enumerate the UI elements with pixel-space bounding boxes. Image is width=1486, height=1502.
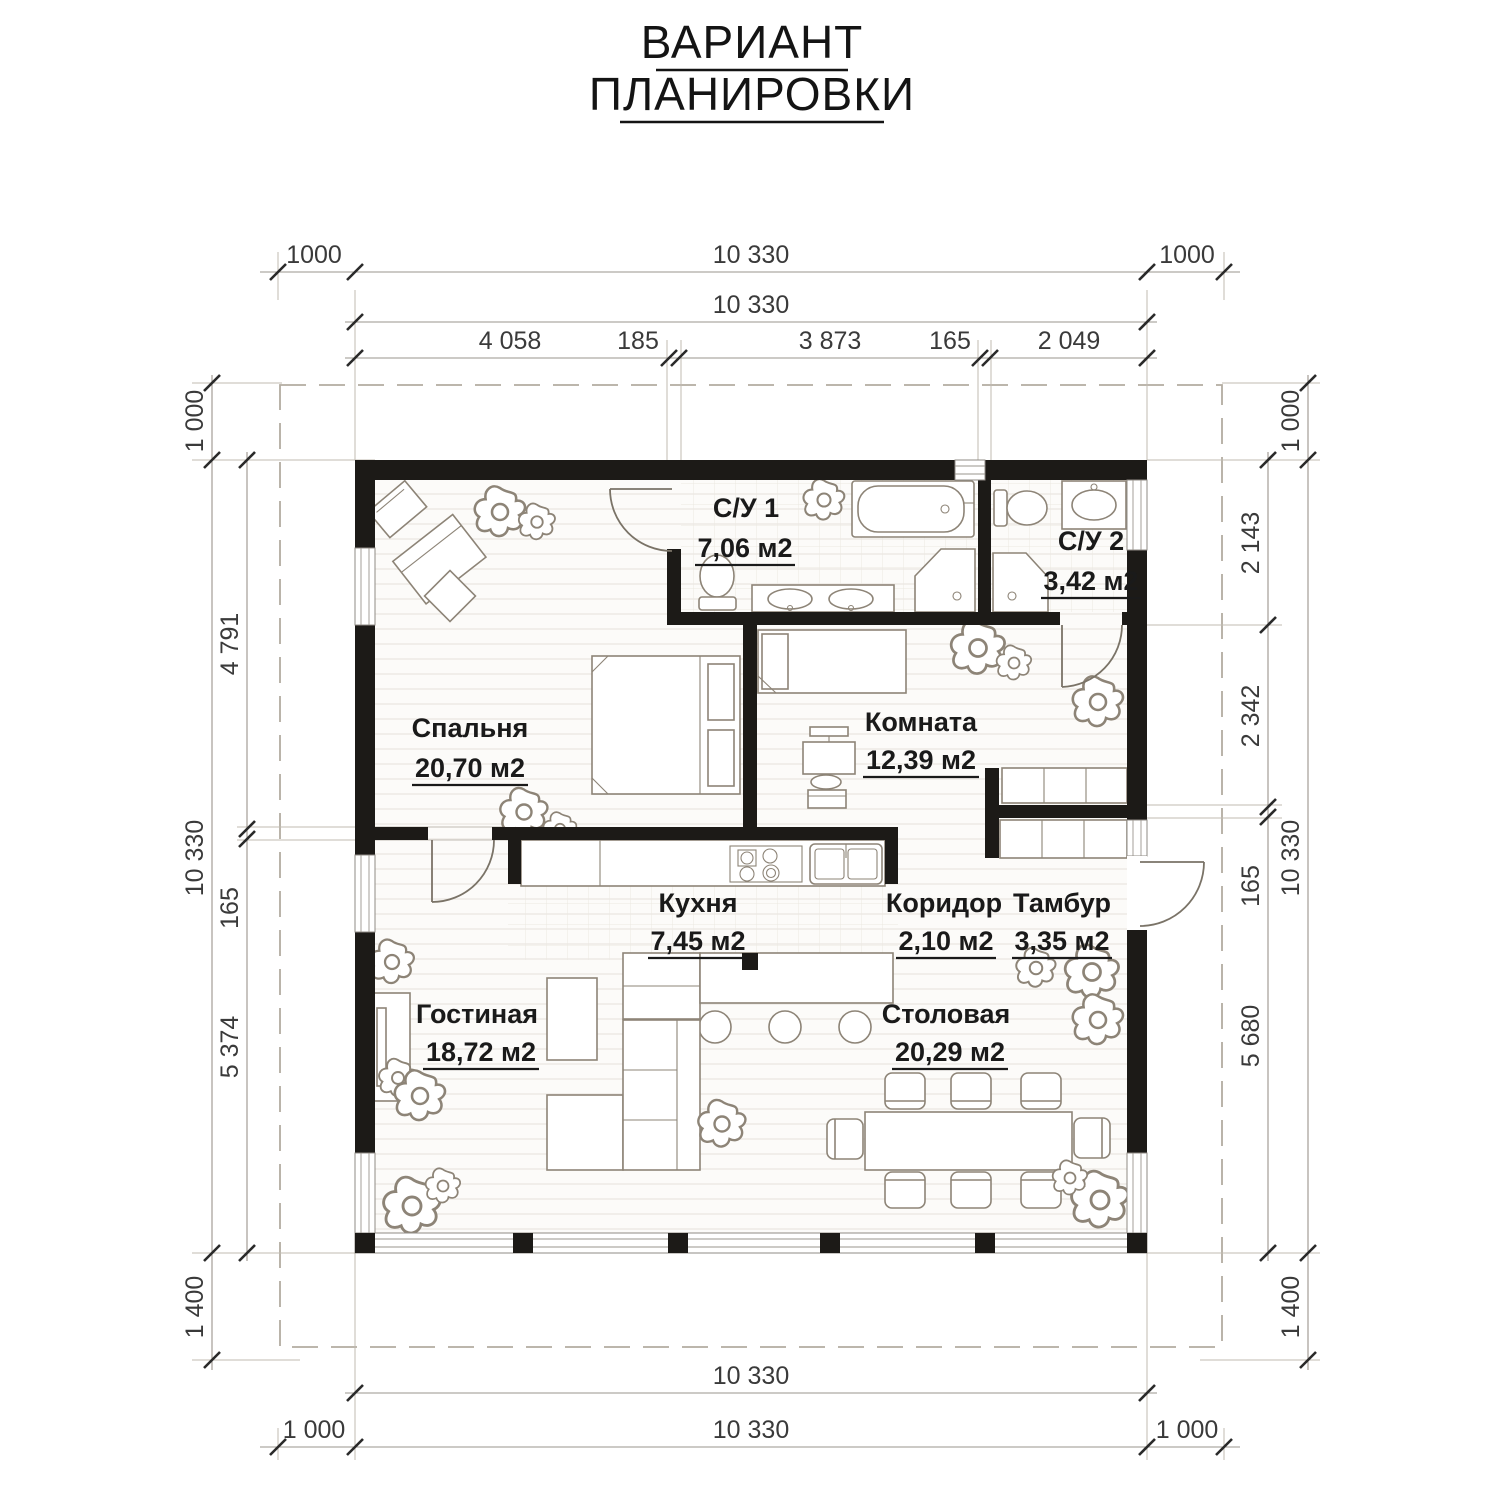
closet-vestibule [1000,820,1127,858]
dim-offset-left: 1 000 [283,1416,346,1444]
dim-offset-bottom: 1 400 [1277,1276,1305,1339]
room-name: Гостиная [416,999,538,1029]
dim-segment: 165 [929,327,971,355]
bed-single [758,630,906,693]
room-area: 20,29 м2 [895,1037,1005,1067]
dim-offset-top: 1 000 [181,390,209,453]
room-name: С/У 1 [713,493,779,523]
dim-segment: 4 791 [216,613,244,676]
dimension-left: 1 000 10 330 1 400 4 791 165 5 374 [181,375,255,1370]
room-name: Тамбур [1013,888,1111,918]
dim-offset-right: 1 000 [1156,1416,1219,1444]
dim-segment: 165 [1237,865,1265,907]
room-area: 7,06 м2 [697,533,792,563]
bar-stool [699,1011,731,1043]
window-living-left-low [355,1153,375,1233]
dimension-top: 1000 10 330 1000 10 330 4 058 185 3 873 … [260,241,1240,366]
dim-segment: 2 143 [1237,512,1265,575]
dining-chair [951,1172,991,1208]
floor-plan-svg: ВАРИАНТ ПЛАНИРОВКИ [0,0,1486,1502]
room-area: 18,72 м2 [426,1037,536,1067]
dining-chair [1074,1118,1110,1158]
dim-segment: 5 680 [1237,1005,1265,1068]
dining-chair [1021,1073,1061,1109]
window-bedroom-left [355,548,375,625]
double-sink-counter [752,585,894,612]
dining-chair [827,1119,863,1159]
room-area: 3,35 м2 [1014,926,1109,956]
dimension-right: 2 143 2 342 165 5 680 1 000 10 330 1 400 [1237,375,1316,1370]
window-top [955,460,985,480]
room-name: Коридор [886,888,1002,918]
dim-total: 10 330 [713,291,789,319]
dim-overall: 10 330 [713,1416,789,1444]
kitchen-sink-icon [810,844,882,884]
dimension-bottom: 10 330 1 000 10 330 1 000 [260,1362,1240,1455]
dim-segment: 4 058 [479,327,542,355]
bar-stool [769,1011,801,1043]
entrance-door [1127,856,1204,930]
dim-segment: 2 342 [1237,685,1265,748]
window-dining-right [1127,1153,1147,1233]
window-bath2-right [1127,480,1147,550]
room-name: Столовая [882,999,1011,1029]
dim-segment: 2 049 [1038,327,1101,355]
kitchen-counter [521,840,885,886]
dim-segment: 185 [617,327,659,355]
dining-table [865,1112,1072,1170]
dim-overall: 10 330 [1277,820,1305,896]
window-living-left [355,855,375,932]
dim-offset-top: 1 000 [1277,390,1305,453]
dining-chair [951,1073,991,1109]
dim-offset-right: 1000 [1159,241,1215,269]
room-name: Спальня [412,713,529,743]
sink-bath2 [1062,481,1126,529]
dim-total: 10 330 [713,1362,789,1390]
room-name: Комната [865,707,978,737]
dim-overall: 10 330 [181,820,209,896]
room-area: 12,39 м2 [866,745,976,775]
floor-plan-sheet: ВАРИАНТ ПЛАНИРОВКИ [0,0,1486,1502]
dim-offset-bottom: 1 400 [181,1276,209,1339]
room-area: 2,10 м2 [898,926,993,956]
dim-segment: 165 [216,887,244,929]
toilet-bath2 [994,490,1047,526]
dining-chair [885,1172,925,1208]
drawing-title: ВАРИАНТ ПЛАНИРОВКИ [589,16,915,122]
dining-chair [885,1073,925,1109]
toilet-bath1 [699,555,736,610]
dim-segment: 3 873 [799,327,862,355]
sofa [623,1020,700,1170]
closet-room [1002,768,1127,803]
room-area: 3,42 м2 [1043,566,1138,596]
dim-segment: 5 374 [216,1016,244,1079]
coffee-table [547,1095,623,1170]
dim-overall: 10 330 [713,241,789,269]
window-vestibule-right [1127,820,1147,856]
bathtub [852,481,974,537]
room-name: Кухня [659,888,738,918]
room-area: 20,70 м2 [415,753,525,783]
armchair [547,978,597,1060]
bar-stool [839,1011,871,1043]
room-area: 7,45 м2 [650,926,745,956]
dim-offset-left: 1000 [286,241,342,269]
room-name: С/У 2 [1058,526,1124,556]
glazed-wall-bottom [355,1233,1147,1253]
title-line-1: ВАРИАНТ [641,16,864,68]
bed-double [592,656,740,794]
title-line-2: ПЛАНИРОВКИ [589,68,915,120]
